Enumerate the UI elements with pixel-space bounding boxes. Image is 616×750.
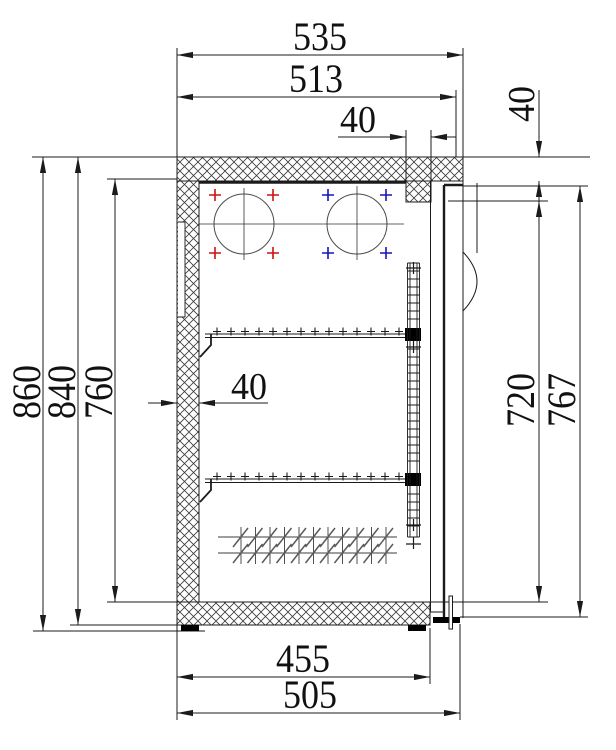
insulation-mullion xyxy=(406,181,431,202)
technical-drawing-page: 535 513 40 40 860 840 760 40 720 767 455… xyxy=(0,0,616,750)
dim-label-767: 767 xyxy=(539,373,584,427)
door-bottom-seal xyxy=(433,617,460,623)
shelf-lower xyxy=(200,473,421,503)
dim-label-40-step: 40 xyxy=(501,86,543,122)
door-frame-inner-line xyxy=(431,181,445,612)
foot-right xyxy=(408,625,426,631)
dim-label-720: 720 xyxy=(498,373,543,427)
foot-left xyxy=(181,625,199,631)
door-assembly xyxy=(431,48,478,629)
dim-label-535: 535 xyxy=(293,14,347,59)
insulation-bottom-band xyxy=(177,602,430,625)
dim-label-760: 760 xyxy=(76,365,121,419)
insulation-top-band xyxy=(177,157,463,181)
door-hinge-pin xyxy=(449,596,453,629)
dim-label-505: 505 xyxy=(283,672,337,717)
cabinet-section-drawing: 535 513 40 40 860 840 760 40 720 767 455… xyxy=(0,0,616,750)
left-wall-groove xyxy=(178,222,185,317)
wire-basket xyxy=(218,527,397,564)
shelf-upper xyxy=(200,328,421,358)
shelf-support-rack xyxy=(406,262,421,549)
dim-label-513: 513 xyxy=(289,56,343,101)
door-handle-arc xyxy=(463,252,477,311)
fan-cutout-right xyxy=(327,186,387,260)
dim-label-40-mullion: 40 xyxy=(340,99,376,141)
dim-label-40-wall: 40 xyxy=(231,366,267,408)
